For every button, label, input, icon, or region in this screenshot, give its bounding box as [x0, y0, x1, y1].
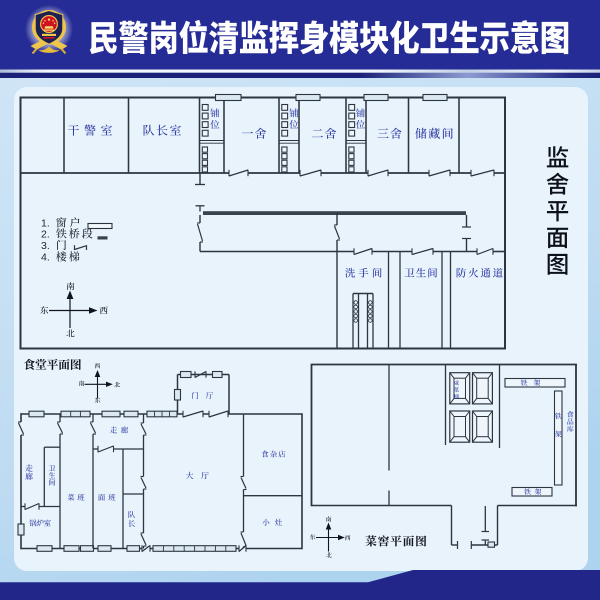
- svg-text:3.: 3.: [41, 240, 50, 252]
- svg-text:2.: 2.: [41, 228, 50, 240]
- svg-text:4.: 4.: [41, 251, 50, 263]
